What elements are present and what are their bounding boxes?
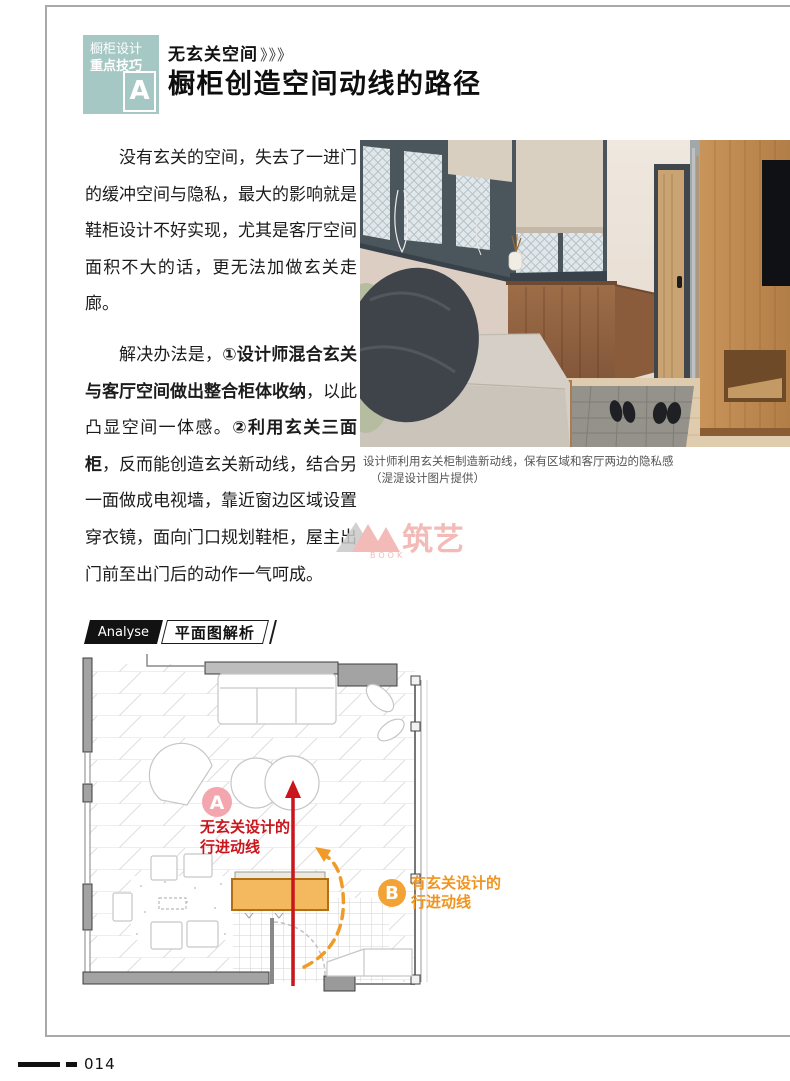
page-frame-left: [45, 5, 47, 1035]
watermark-book-text: BOOK: [370, 551, 405, 560]
photo-door: [654, 164, 690, 386]
photo-caption-line1: 设计师利用玄关柜制造新动线，保有区域和客厅两边的隐私感: [363, 453, 783, 470]
floor-plan-drawing: A 无玄关设计的 行进动线 B 有玄关设计的 行进动线: [75, 650, 520, 1020]
photo-tv: [762, 160, 790, 286]
hero-photo-illustration: [360, 140, 790, 447]
page-number: 014: [84, 1055, 116, 1073]
badge-b-letter: B: [385, 883, 399, 904]
chapter-tag-box: 橱柜设计 重点技巧 A: [83, 35, 159, 114]
photo-wardrobe: [700, 140, 790, 436]
body-text-column: 没有玄关的空间，失去了一进门的缓冲空间与隐私，最大的影响就是鞋柜设计不好实现，尤…: [85, 140, 357, 593]
page-frame-bottom: [45, 1035, 790, 1037]
chapter-tag-line1: 橱柜设计: [90, 41, 159, 58]
analyse-zh-text: 平面图解析: [175, 622, 255, 643]
paragraph-1: 没有玄关的空间，失去了一进门的缓冲空间与隐私，最大的影响就是鞋柜设计不好实现，尤…: [85, 140, 357, 323]
footer-dash-short: [66, 1062, 77, 1067]
footer-dash-long: [18, 1062, 60, 1067]
paragraph-2: 解决办法是，①设计师混合玄关与客厅空间做出整合柜体收纳，以此凸显空间一体感。②利…: [85, 337, 357, 593]
floor-plan: A 无玄关设计的 行进动线 B 有玄关设计的 行进动线: [75, 650, 520, 1024]
book-page: 橱柜设计 重点技巧 A 无玄关空间》》》 橱柜创造空间动线的路径 没有玄关的空间…: [0, 0, 790, 1081]
analyse-en-box: Analyse: [84, 620, 163, 644]
page-frame-top: [45, 5, 790, 7]
route-b-label-line2: 行进动线: [410, 893, 471, 911]
watermark-brand-text: 筑艺: [402, 522, 464, 558]
analyse-slash-icon: [269, 620, 276, 644]
analyse-zh-box: 平面图解析: [161, 620, 269, 644]
photo-mirror: [690, 140, 700, 398]
watermark-illustration: BOOK 筑艺: [330, 512, 475, 562]
page-title: 橱柜创造空间动线的路径: [168, 62, 482, 101]
photo-caption-line2: （湜湜设计图片提供）: [370, 470, 783, 487]
watermark-logo: BOOK 筑艺: [330, 512, 475, 566]
analyse-label: Analyse 平面图解析: [84, 620, 271, 644]
route-a-label-line2: 行进动线: [199, 838, 260, 856]
route-a-label-line1: 无玄关设计的: [199, 818, 290, 836]
analyse-en-text: Analyse: [98, 625, 149, 640]
photo-caption: 设计师利用玄关柜制造新动线，保有区域和客厅两边的隐私感 （湜湜设计图片提供）: [363, 453, 783, 487]
hero-photo: [360, 140, 790, 447]
section-letter-badge: A: [123, 71, 156, 112]
badge-a-letter: A: [210, 792, 225, 814]
route-b-label-line1: 有玄关设计的: [411, 874, 501, 892]
